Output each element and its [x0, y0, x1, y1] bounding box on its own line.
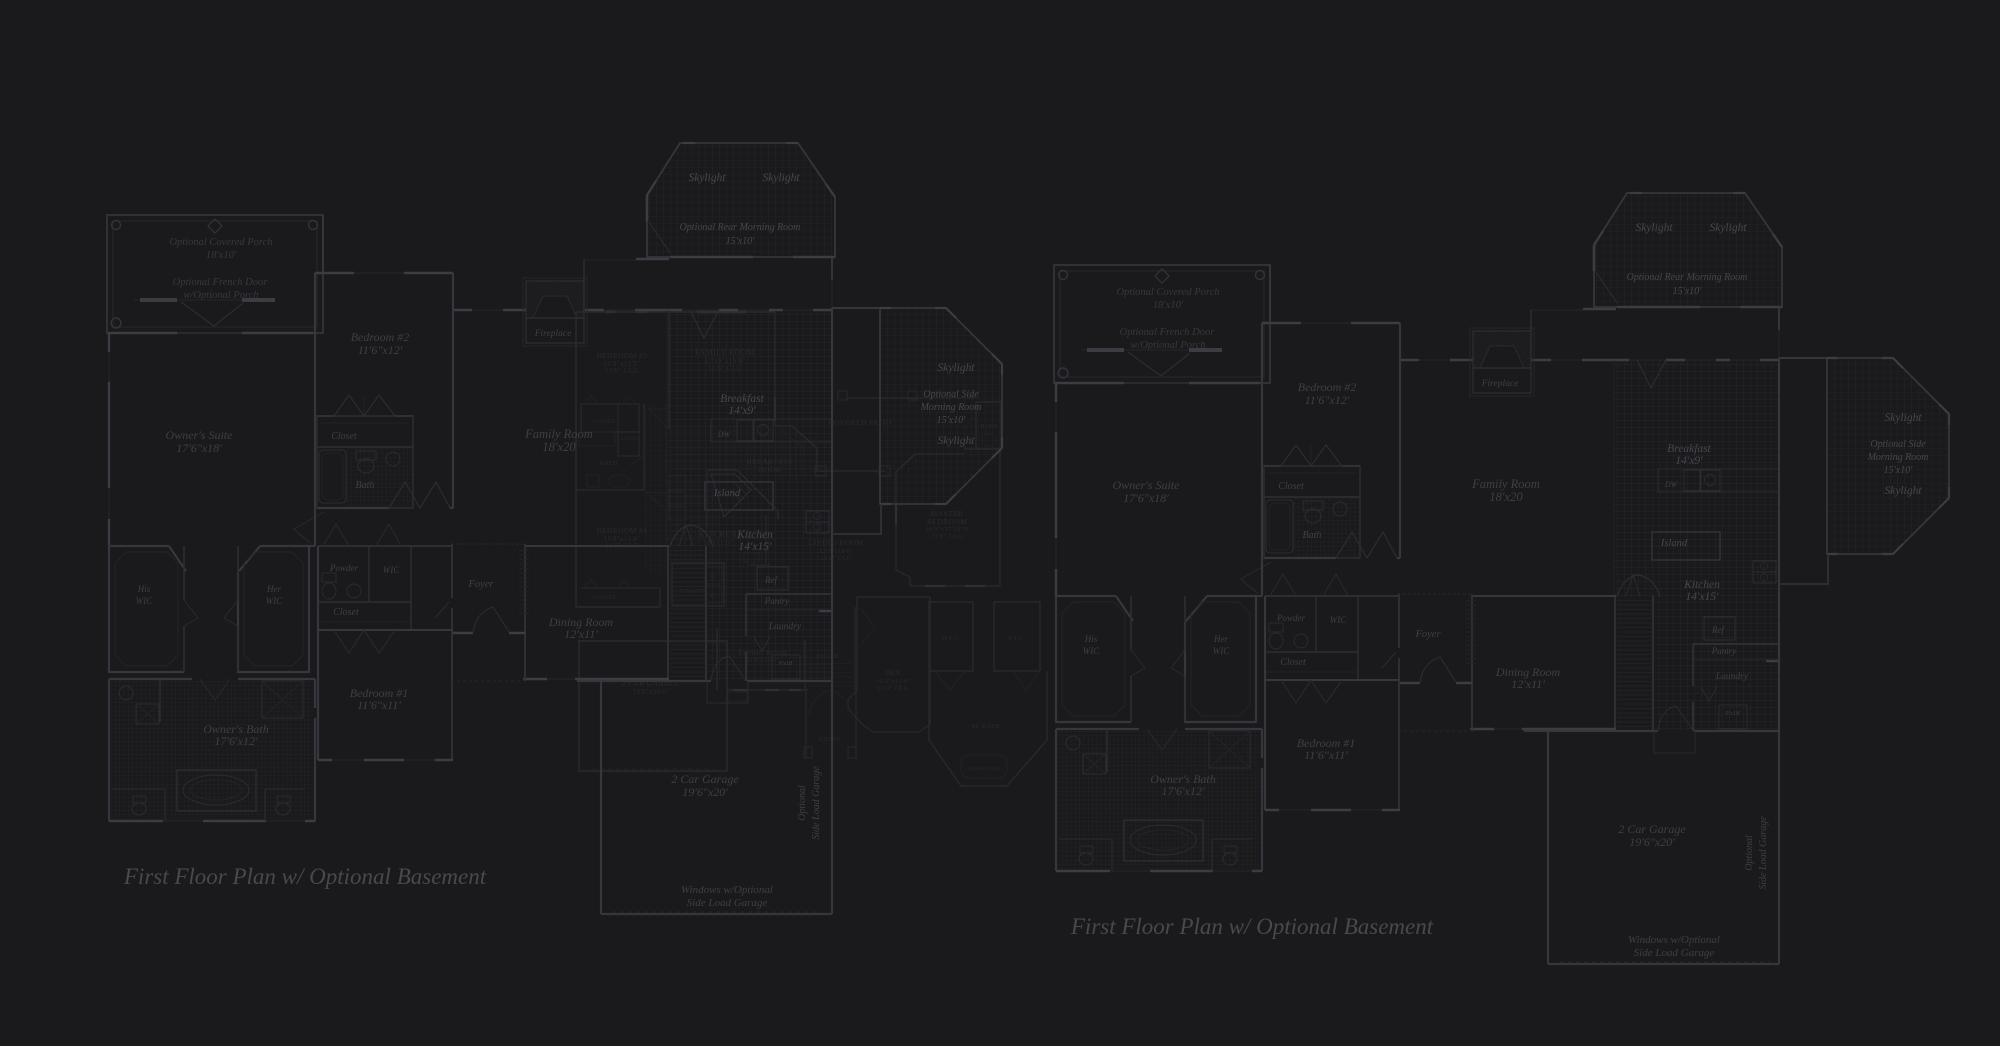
svg-text:Optional: Optional: [1744, 835, 1755, 871]
svg-text:Optional Covered Porch: Optional Covered Porch: [1116, 287, 1219, 298]
svg-text:Powder: Powder: [1276, 613, 1305, 623]
svg-text:15'x10': 15'x10': [1673, 286, 1703, 297]
svg-text:2 Car Garage: 2 Car Garage: [1618, 822, 1686, 836]
svg-text:ROMAN TUB: ROMAN TUB: [969, 766, 999, 771]
svg-text:Laundry: Laundry: [1715, 672, 1749, 682]
svg-text:11'0" CLG: 11'0" CLG: [877, 685, 909, 692]
svg-text:Windows w/Optional: Windows w/Optional: [1628, 934, 1720, 946]
svg-text:Ref: Ref: [1711, 625, 1725, 635]
svg-text:Optional French Door: Optional French Door: [1120, 327, 1216, 338]
svg-text:Side Load Garage: Side Load Garage: [1634, 947, 1715, 959]
svg-text:Owner's Suite: Owner's Suite: [1113, 478, 1181, 492]
svg-text:17'6'x12': 17'6'x12': [1161, 784, 1204, 798]
svg-text:BEDROOM #4: BEDROOM #4: [597, 526, 648, 535]
svg-text:Morning Room: Morning Room: [1867, 452, 1929, 463]
svg-text:W.I.C.: W.I.C.: [942, 636, 960, 642]
svg-text:10'0"x11'0": 10'0"x11'0": [876, 678, 911, 685]
svg-text:ENTRY: ENTRY: [819, 737, 841, 743]
svg-text:WIC: WIC: [1330, 615, 1347, 625]
svg-text:Skylight: Skylight: [1884, 485, 1922, 497]
svg-text:LINEN: LINEN: [621, 437, 638, 442]
svg-text:17'6"x18': 17'6"x18': [1123, 491, 1169, 505]
svg-text:DW: DW: [1664, 480, 1679, 489]
svg-text:Bath: Bath: [1303, 530, 1322, 541]
svg-text:Side Load Garage: Side Load Garage: [1758, 816, 1769, 890]
svg-text:M. BATH: M. BATH: [972, 723, 1001, 730]
svg-text:Her: Her: [1213, 634, 1228, 644]
svg-text:Skylight: Skylight: [1635, 222, 1673, 234]
svg-text:11'6"x12': 11'6"x12': [1305, 393, 1350, 407]
svg-text:11'6" CLG: 11'6" CLG: [605, 367, 639, 375]
svg-text:Fireplace: Fireplace: [1481, 379, 1519, 389]
svg-text:WIC: WIC: [1083, 646, 1100, 656]
svg-text:Optional Side: Optional Side: [1870, 439, 1926, 450]
svg-text:19'6"x20'0": 19'6"x20'0": [632, 688, 669, 696]
svg-text:Closet: Closet: [1280, 657, 1306, 668]
svg-text:BEDROOM #3: BEDROOM #3: [597, 351, 648, 360]
svg-text:14'x9': 14'x9': [1675, 455, 1703, 467]
svg-text:Closet: Closet: [1278, 481, 1304, 492]
svg-text:11'6"x11': 11'6"x11': [1304, 748, 1348, 762]
svg-text:14'x15': 14'x15': [1685, 591, 1719, 603]
svg-text:11'0" CLG: 11'0" CLG: [931, 533, 963, 540]
svg-text:Family Room: Family Room: [1471, 477, 1540, 491]
svg-text:Optional Rear Morning Room: Optional Rear Morning Room: [1627, 272, 1748, 283]
svg-text:19'6"x20': 19'6"x20': [1629, 835, 1675, 849]
svg-text:Breakfast: Breakfast: [1667, 443, 1711, 455]
svg-text:18'x10': 18'x10': [1153, 300, 1184, 311]
svg-text:BEDROOM: BEDROOM: [927, 517, 967, 526]
svg-text:Pantry: Pantry: [1711, 646, 1737, 656]
svg-text:First Floor Plan w/ Optional: First Floor Plan w/ Optional Basement: [1070, 914, 1434, 939]
svg-text:Skylight: Skylight: [1709, 222, 1747, 234]
svg-text:BATH: BATH: [600, 460, 619, 467]
svg-text:12'x11': 12'x11': [1511, 677, 1545, 691]
svg-text:Bedroom #2: Bedroom #2: [1298, 380, 1357, 394]
svg-text:9'x18': 9'x18': [1725, 710, 1741, 717]
svg-text:15'x10': 15'x10': [1884, 465, 1914, 476]
svg-text:WIC: WIC: [1213, 646, 1230, 656]
svg-text:Skylight: Skylight: [1884, 412, 1922, 424]
svg-text:CLOSET: CLOSET: [593, 595, 616, 601]
svg-text:Foyer: Foyer: [1414, 629, 1441, 640]
svg-text:16'0"x17'10"O: 16'0"x17'10"O: [925, 526, 969, 533]
svg-text:CLOSET: CLOSET: [592, 419, 615, 425]
svg-text:Island: Island: [1660, 538, 1688, 549]
svg-text:Kitchen: Kitchen: [1683, 579, 1720, 591]
svg-text:His: His: [1084, 634, 1098, 644]
svg-text:DEN: DEN: [885, 669, 901, 677]
svg-text:18'x20: 18'x20: [1489, 490, 1523, 504]
svg-text:W.I.C.: W.I.C.: [1007, 636, 1025, 642]
